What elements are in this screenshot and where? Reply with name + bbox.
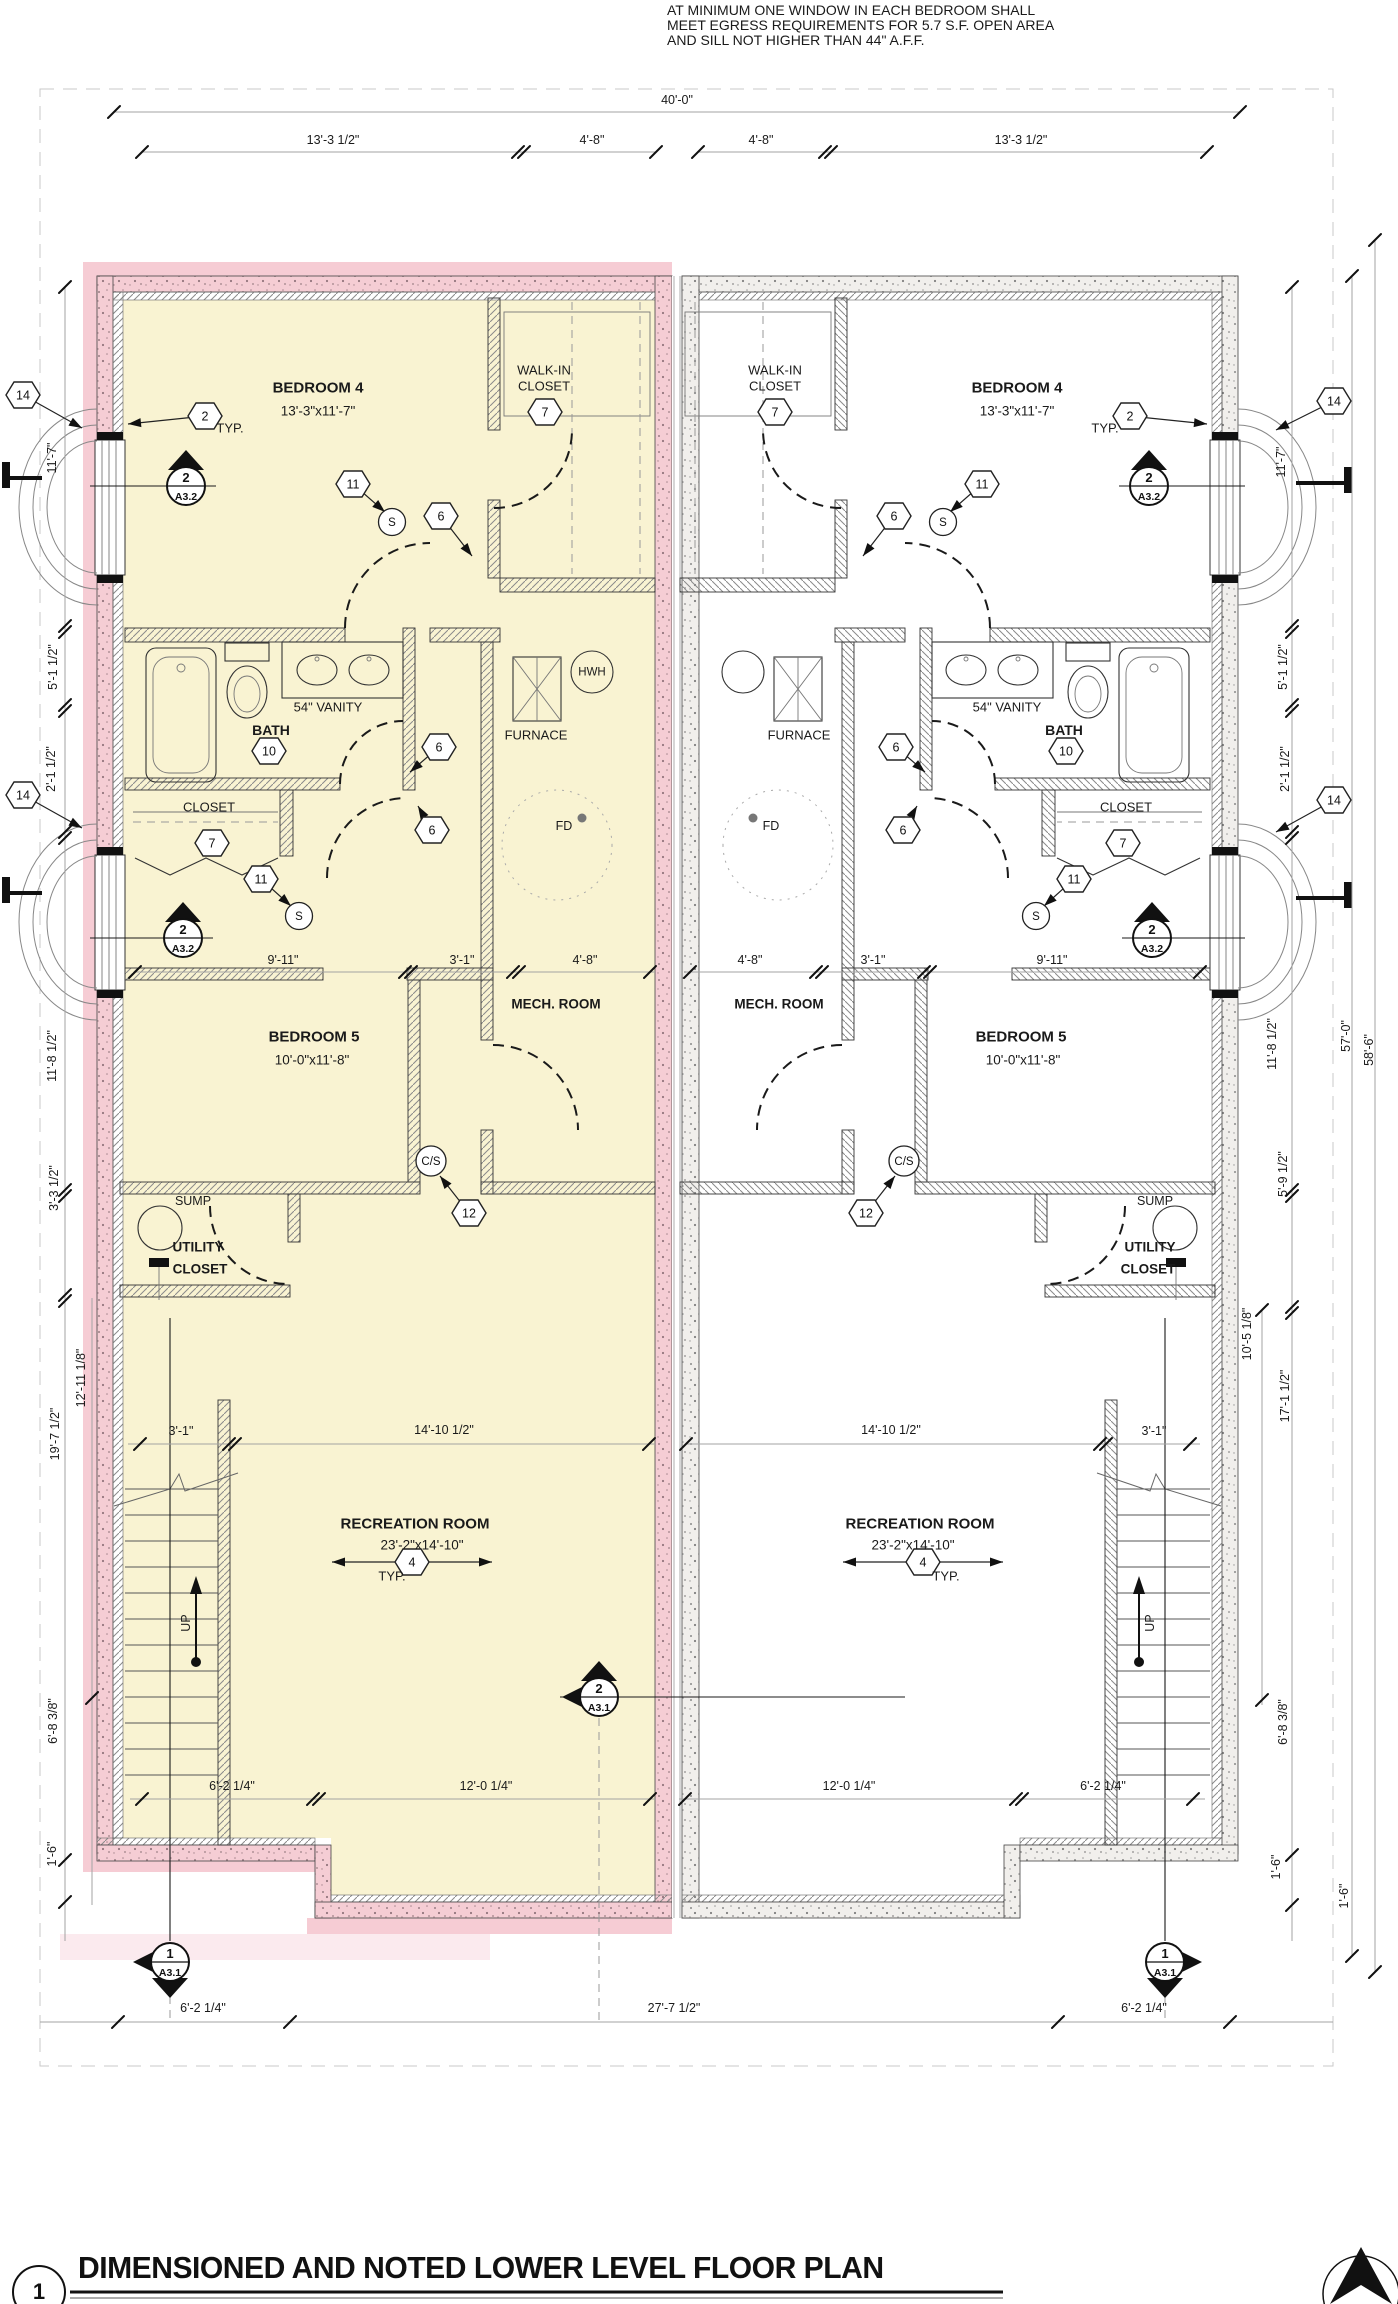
switch-label: C/S [894,1156,914,1168]
dimensions-and-markers: 22771111661010666677111112124414141414SS… [0,0,1398,2304]
switch-label: C/S [421,1156,441,1168]
section-marker-2-A3.2: 2A3.2 [1133,902,1171,957]
section-number: 2 [179,922,186,937]
section-marker-1-A3.1: 1A3.1 [133,1943,189,1998]
keynote-number: 14 [16,389,30,403]
section-number: 2 [1145,470,1152,485]
keynote-hex-10: 10 [252,738,286,764]
switch-label: S [1032,911,1040,923]
keynote-hex-10: 10 [1049,738,1083,764]
keynote-hex-14: 14 [6,382,40,408]
keynote-number: 7 [772,406,779,420]
keynote-number: 11 [255,873,268,887]
switch-marker-S: S [930,509,957,536]
section-marker-2-A3.2: 2A3.2 [1130,450,1168,505]
keynote-hex-6: 6 [886,817,920,843]
section-marker-2-A3.2: 2A3.2 [164,902,202,957]
section-sheet: A3.2 [172,943,194,955]
section-number: 1 [166,1946,173,1961]
keynote-hex-12: 12 [452,1200,486,1226]
section-marker-2-A3.2: 2A3.2 [167,450,205,505]
section-number: 2 [595,1681,602,1696]
keynote-number: 2 [1127,410,1134,424]
keynote-hex-7: 7 [195,830,229,856]
switch-marker-C-S: C/S [889,1146,919,1176]
section-number: 2 [1148,922,1155,937]
switch-marker-S: S [1023,903,1050,930]
keynote-hex-2: 2 [1113,403,1147,429]
keynote-number: 4 [920,1556,927,1570]
keynote-hex-7: 7 [528,399,562,425]
detail-number: 1 [33,2279,45,2304]
keynote-number: 7 [209,837,216,851]
keynote-hex-6: 6 [879,734,913,760]
keynote-number: 4 [409,1556,416,1570]
keynote-number: 10 [262,745,276,759]
switch-marker-S: S [286,903,313,930]
keynote-hex-2: 2 [188,403,222,429]
sheet-title: DIMENSIONED AND NOTED LOWER LEVEL FLOOR … [78,2250,884,2286]
keynote-hex-4: 4 [906,1549,940,1575]
keynote-number: 14 [1327,794,1341,808]
section-sheet: A3.2 [1141,943,1163,955]
section-number: 1 [1161,1946,1168,1961]
keynote-hex-4: 4 [395,1549,429,1575]
floor-plan-sheet: 22771111661010666677111112124414141414SS… [0,0,1398,2304]
keynote-hex-11: 11 [336,471,370,497]
keynote-hex-7: 7 [758,399,792,425]
keynote-hex-6: 6 [877,503,911,529]
keynote-number: 12 [462,1207,476,1221]
keynote-hex-11: 11 [965,471,999,497]
keynote-number: 6 [438,510,445,524]
keynote-number: 6 [891,510,898,524]
keynote-number: 11 [1068,873,1081,887]
switch-label: S [295,911,303,923]
section-sheet: A3.1 [159,1967,181,1979]
keynote-hex-14: 14 [1317,388,1351,414]
keynote-number: 6 [900,824,907,838]
keynote-hex-14: 14 [6,782,40,808]
section-sheet: A3.1 [1154,1967,1176,1979]
keynote-hex-14: 14 [1317,787,1351,813]
switch-marker-C-S: C/S [416,1146,446,1176]
keynote-number: 10 [1059,745,1073,759]
keynote-number: 11 [976,478,989,492]
keynote-hex-11: 11 [1057,866,1091,892]
keynote-number: 6 [893,741,900,755]
section-marker-2-A3.1: 2A3.1 [562,1661,618,1716]
keynote-number: 12 [859,1207,873,1221]
keynote-hex-6: 6 [424,503,458,529]
section-number: 2 [182,470,189,485]
keynote-number: 14 [16,789,30,803]
keynote-number: 7 [1120,837,1127,851]
keynote-hex-11: 11 [244,866,278,892]
keynote-hex-6: 6 [415,817,449,843]
keynote-number: 2 [202,410,209,424]
section-sheet: A3.2 [175,491,197,503]
section-sheet: A3.1 [588,1702,610,1714]
keynote-number: 14 [1327,395,1341,409]
section-sheet: A3.2 [1138,491,1160,503]
keynote-number: 7 [542,406,549,420]
section-marker-1-A3.1: 1A3.1 [1146,1943,1202,1998]
switch-marker-S: S [379,509,406,536]
keynote-number: 6 [436,741,443,755]
keynote-hex-7: 7 [1106,830,1140,856]
keynote-hex-12: 12 [849,1200,883,1226]
keynote-number: 6 [429,824,436,838]
switch-label: S [388,517,396,529]
switch-label: S [939,517,947,529]
keynote-hex-6: 6 [422,734,456,760]
keynote-number: 11 [347,478,360,492]
